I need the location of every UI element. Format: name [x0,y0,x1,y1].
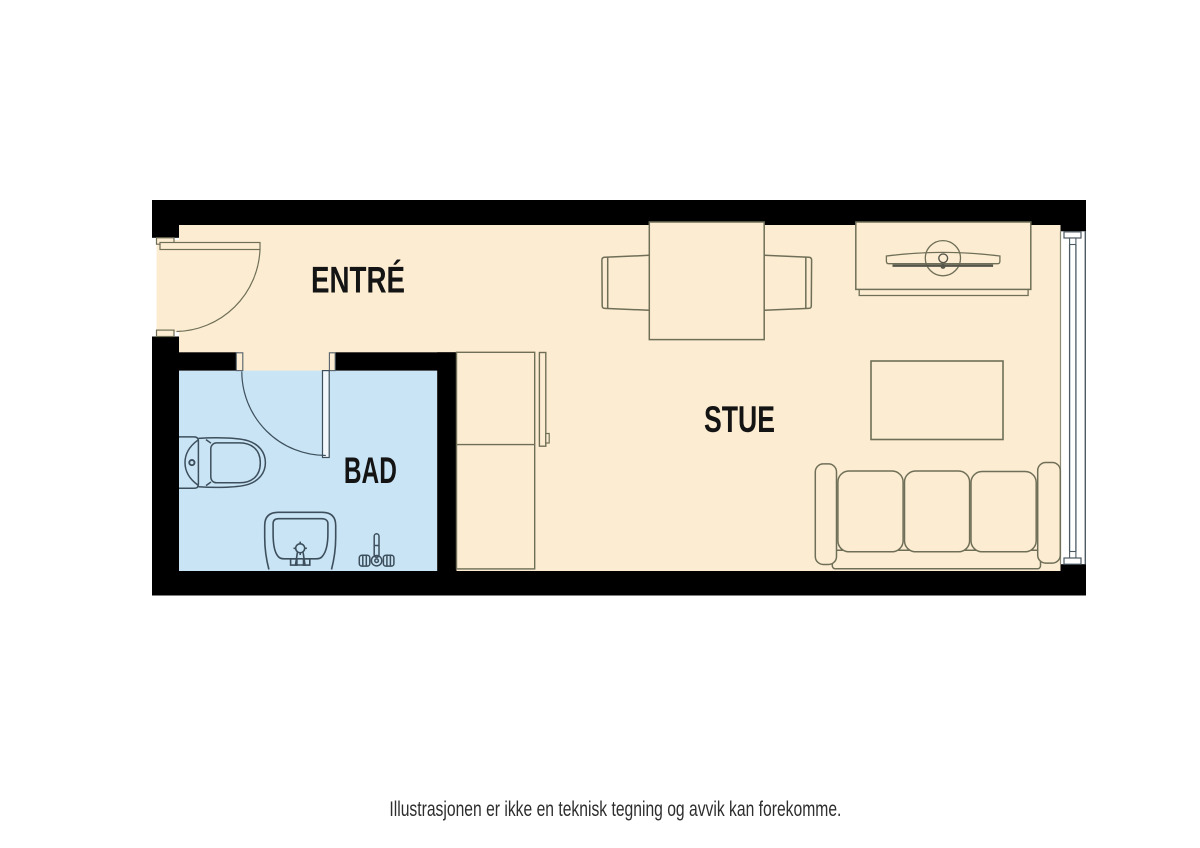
svg-text:BAD: BAD [344,450,397,491]
svg-text:ENTRÉ: ENTRÉ [311,259,405,300]
svg-text:Illustrasjonen er ikke en tekn: Illustrasjonen er ikke en teknisk tegnin… [389,797,841,821]
svg-text:STUE: STUE [704,399,775,440]
